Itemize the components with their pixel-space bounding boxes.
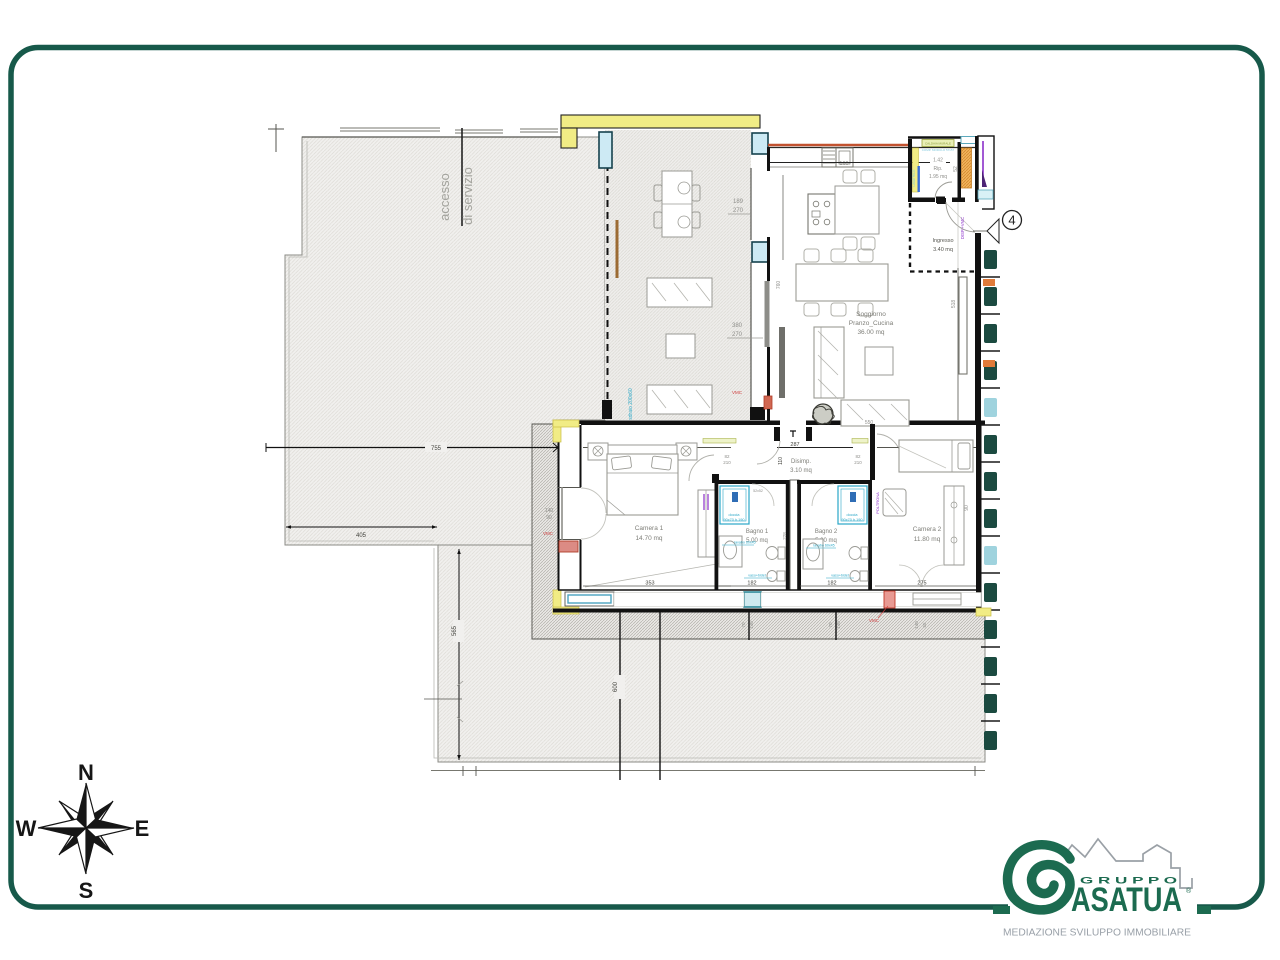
svg-text:lavabo 60x45: lavabo 60x45 xyxy=(813,544,834,548)
svg-text:sdraio 200x60: sdraio 200x60 xyxy=(628,388,634,420)
svg-text:doccia: doccia xyxy=(729,513,741,517)
svg-text:52x52: 52x52 xyxy=(753,489,763,493)
svg-text:VMC: VMC xyxy=(869,618,880,623)
svg-text:VMC: VMC xyxy=(543,531,554,536)
svg-text:353: 353 xyxy=(645,581,654,587)
svg-text:vaso+bidet: vaso+bidet xyxy=(831,574,848,578)
svg-text:4: 4 xyxy=(1008,213,1015,228)
svg-text:N: N xyxy=(78,760,94,785)
svg-text:doccia: doccia xyxy=(847,513,859,517)
svg-text:600: 600 xyxy=(613,681,619,692)
svg-text:MEDIAZIONE SVILUPPO IMMOBILIAR: MEDIAZIONE SVILUPPO IMMOBILIARE xyxy=(1003,928,1191,939)
svg-text:90x70 h.190: 90x70 h.190 xyxy=(842,518,863,522)
svg-text:3.40 mq: 3.40 mq xyxy=(933,247,953,253)
svg-text:ASATUA: ASATUA xyxy=(1071,881,1182,919)
svg-text:82: 82 xyxy=(724,454,730,459)
svg-text:POLTRONA: POLTRONA xyxy=(875,492,880,514)
svg-text:275: 275 xyxy=(917,581,926,587)
svg-text:55: 55 xyxy=(922,622,927,628)
svg-text:DISP.+VMC: DISP.+VMC xyxy=(960,217,965,239)
svg-text:189: 189 xyxy=(733,199,744,205)
svg-text:E: E xyxy=(135,816,150,841)
svg-text:Pranzo_Cucina: Pranzo_Cucina xyxy=(849,320,894,327)
svg-text:COMP. MODULO 57x57: COMP. MODULO 57x57 xyxy=(922,148,955,152)
svg-text:di servizio: di servizio xyxy=(460,167,475,225)
svg-text:755: 755 xyxy=(431,446,442,452)
svg-text:1.95 mq: 1.95 mq xyxy=(929,174,947,180)
svg-text:82: 82 xyxy=(855,454,861,459)
svg-text:VMC: VMC xyxy=(732,390,743,395)
svg-text:760: 760 xyxy=(776,281,782,290)
svg-text:140: 140 xyxy=(749,621,754,629)
svg-text:70: 70 xyxy=(828,622,833,628)
svg-text:Camera 2: Camera 2 xyxy=(913,526,942,533)
svg-text:287: 287 xyxy=(790,442,799,448)
svg-text:140: 140 xyxy=(914,621,919,629)
svg-text:14.70 mq: 14.70 mq xyxy=(635,535,662,542)
svg-text:210: 210 xyxy=(723,460,731,465)
svg-text:11.80 mq: 11.80 mq xyxy=(914,536,941,543)
svg-text:Soggiorno: Soggiorno xyxy=(856,311,886,318)
svg-text:S: S xyxy=(79,878,94,903)
svg-text:160: 160 xyxy=(839,161,848,167)
svg-text:90x70 h.190: 90x70 h.190 xyxy=(724,518,745,522)
svg-text:LAVATRICE: LAVATRICE xyxy=(912,169,916,186)
svg-text:Camera 1: Camera 1 xyxy=(635,525,664,532)
svg-text:140: 140 xyxy=(836,621,841,629)
svg-text:®: ® xyxy=(1186,887,1192,895)
svg-text:Ingresso: Ingresso xyxy=(932,238,953,244)
svg-text:228: 228 xyxy=(782,532,787,540)
svg-text:380: 380 xyxy=(732,323,743,329)
svg-text:W: W xyxy=(16,816,37,841)
svg-text:36.00 mq: 36.00 mq xyxy=(857,329,884,336)
svg-text:3.10 mq: 3.10 mq xyxy=(790,468,812,474)
svg-text:accesso: accesso xyxy=(437,173,452,221)
svg-text:140: 140 xyxy=(545,508,554,514)
svg-text:90: 90 xyxy=(964,505,970,511)
svg-text:CALDAIA MURALE: CALDAIA MURALE xyxy=(925,142,951,146)
svg-text:Disimp.: Disimp. xyxy=(791,459,811,465)
svg-text:52: 52 xyxy=(953,166,959,172)
svg-text:110: 110 xyxy=(778,457,784,465)
svg-text:Bagno 2: Bagno 2 xyxy=(815,529,838,535)
svg-text:270: 270 xyxy=(732,332,743,338)
svg-text:Rip.: Rip. xyxy=(934,166,943,172)
svg-text:182: 182 xyxy=(747,581,756,587)
svg-text:182: 182 xyxy=(827,581,836,587)
svg-text:lavabo 60x45: lavabo 60x45 xyxy=(734,541,755,545)
svg-text:70: 70 xyxy=(741,622,746,628)
svg-text:405: 405 xyxy=(356,533,367,539)
svg-text:90: 90 xyxy=(546,515,552,521)
svg-text:210: 210 xyxy=(854,460,862,465)
svg-text:565: 565 xyxy=(452,625,458,636)
svg-text:Bagno 1: Bagno 1 xyxy=(746,529,769,535)
svg-text:518: 518 xyxy=(951,300,957,309)
svg-text:270: 270 xyxy=(733,208,744,214)
svg-text:1.42: 1.42 xyxy=(933,158,943,164)
svg-text:vaso+bidet: vaso+bidet xyxy=(748,574,765,578)
